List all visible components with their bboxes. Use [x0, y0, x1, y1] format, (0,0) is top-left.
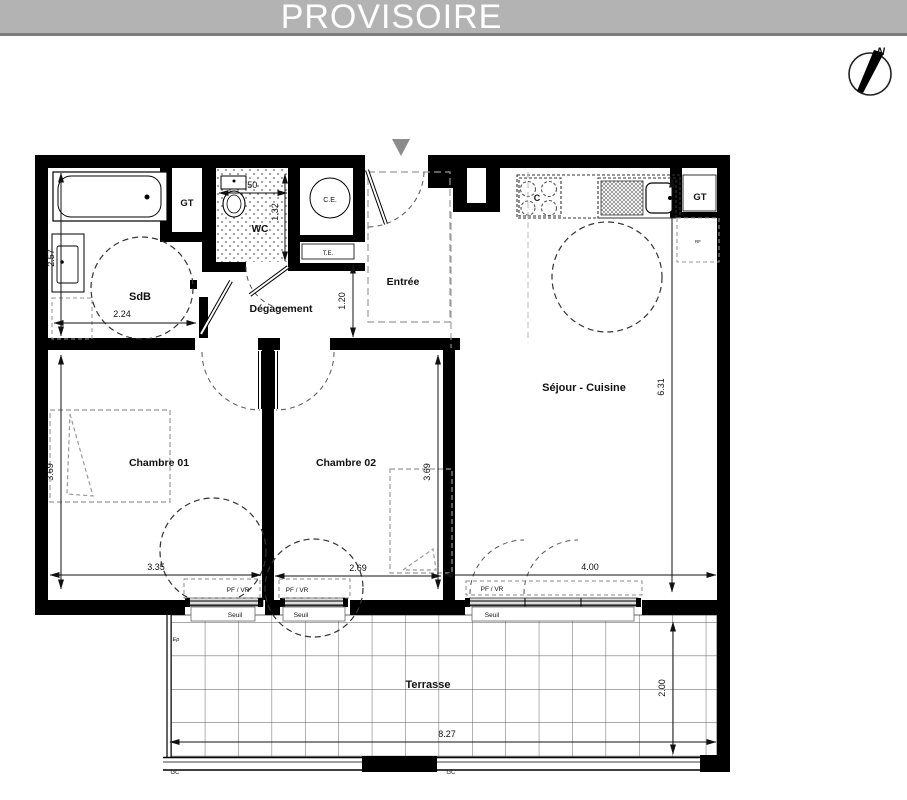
duct-label-gt-sejour: GT [693, 192, 706, 203]
room-label-terrasse: Terrasse [405, 679, 450, 691]
room-label-sejour: Séjour - Cuisine [542, 382, 626, 394]
threshold-label: Seuil [228, 612, 243, 619]
room-label-chambre1: Chambre 01 [129, 457, 189, 469]
dim-sdb-width: 2.24 [113, 309, 131, 319]
toilet [221, 176, 246, 217]
window-type-label: PF / VR [286, 587, 309, 594]
railing-pier [700, 755, 730, 772]
dim-chambre1-width: 3.35 [147, 562, 165, 572]
room-label-chambre2: Chambre 02 [316, 457, 376, 469]
dim-sejour-height: 6.31 [656, 378, 666, 396]
dim-chambre2-height: 3.69 [422, 463, 432, 481]
threshold-label: Seuil [485, 612, 500, 619]
threshold-label: Seuil [294, 612, 309, 619]
dim-wc-width: .50 [245, 180, 258, 190]
window-type-label: PF / VR [481, 586, 504, 593]
bed-chambre1 [50, 410, 170, 502]
dim-terrasse-height: 2.00 [657, 679, 667, 697]
electrical-panel-label: T.E. [323, 251, 334, 257]
kitchen-sink [601, 181, 673, 215]
dim-hall-width: 1.20 [337, 292, 347, 310]
rain-drain-label: Ep [173, 637, 180, 643]
cooktop-label: C [534, 193, 541, 203]
room-label-sdb: SdB [129, 291, 151, 303]
entry-direction-arrow-icon [392, 139, 410, 156]
fridge-label: RF [695, 239, 701, 244]
washer-space [52, 298, 92, 339]
gc-label: GC [447, 770, 457, 776]
dim-sdb-height: 2.57 [46, 249, 56, 267]
bathroom-sink [52, 234, 84, 292]
dim-sejour-width: 4.00 [581, 562, 599, 572]
terrace [163, 615, 730, 772]
north-compass: N [849, 46, 891, 95]
duct-label-gt-bathroom: GT [180, 198, 193, 209]
room-label-wc: WC [252, 224, 269, 235]
railing-pier [362, 756, 437, 772]
dim-wc-height: 1.32 [270, 203, 280, 221]
banner-title: PROVISOIRE [281, 0, 503, 37]
dim-terrasse-width: 8.27 [438, 729, 456, 739]
window-type-label: PF / VR [227, 587, 250, 594]
water-heater-label: C.E. [323, 197, 337, 204]
dim-chambre1-height: 3.69 [45, 463, 55, 481]
provisional-banner: PROVISOIRE [0, 0, 907, 36]
entree-zone-outline [368, 172, 450, 322]
room-label-entree: Entrée [387, 276, 420, 288]
dim-chambre2-width: 2.69 [349, 563, 367, 573]
bathtub [53, 172, 167, 221]
room-label-degagement: Dégagement [249, 303, 313, 315]
bed-chambre2 [390, 469, 452, 573]
gc-label: GC [171, 770, 181, 776]
compass-north-label: N [877, 46, 886, 58]
floor-plan: N [0, 36, 907, 800]
